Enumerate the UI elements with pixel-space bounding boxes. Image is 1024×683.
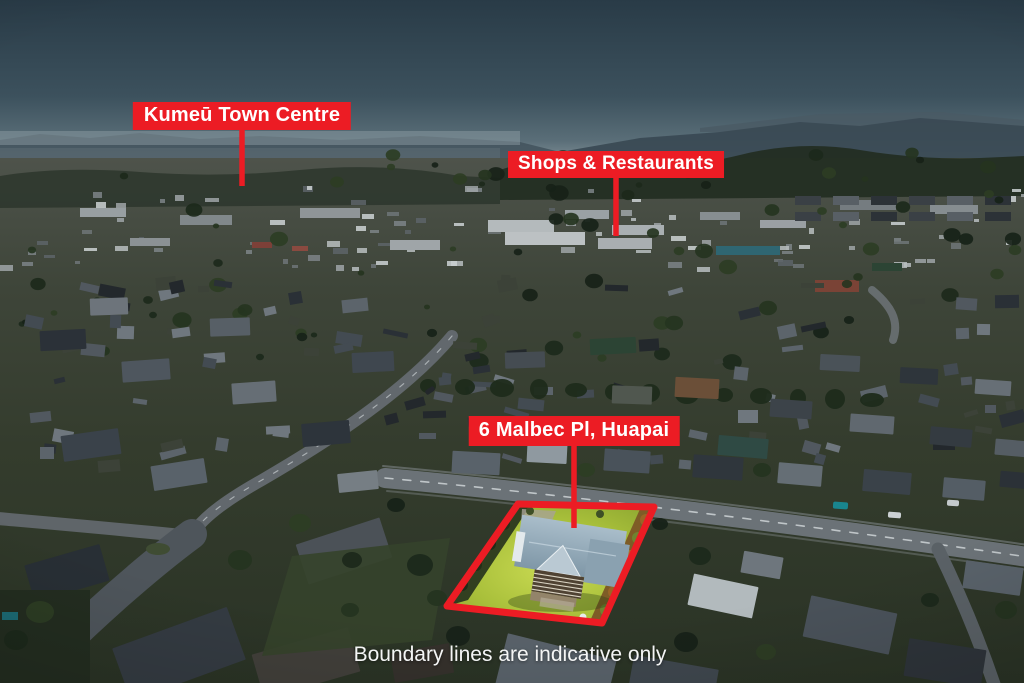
label-kumeu-town-centre: Kumeū Town Centre [133, 102, 351, 130]
boundary-disclaimer-text: Boundary lines are indicative only [354, 643, 667, 667]
annotated-aerial-photo: Kumeū Town Centre Shops & Restaurants 6 … [0, 0, 1024, 683]
label-shops-restaurants: Shops & Restaurants [508, 151, 724, 178]
label-property-address: 6 Malbec Pl, Huapai [469, 416, 680, 446]
